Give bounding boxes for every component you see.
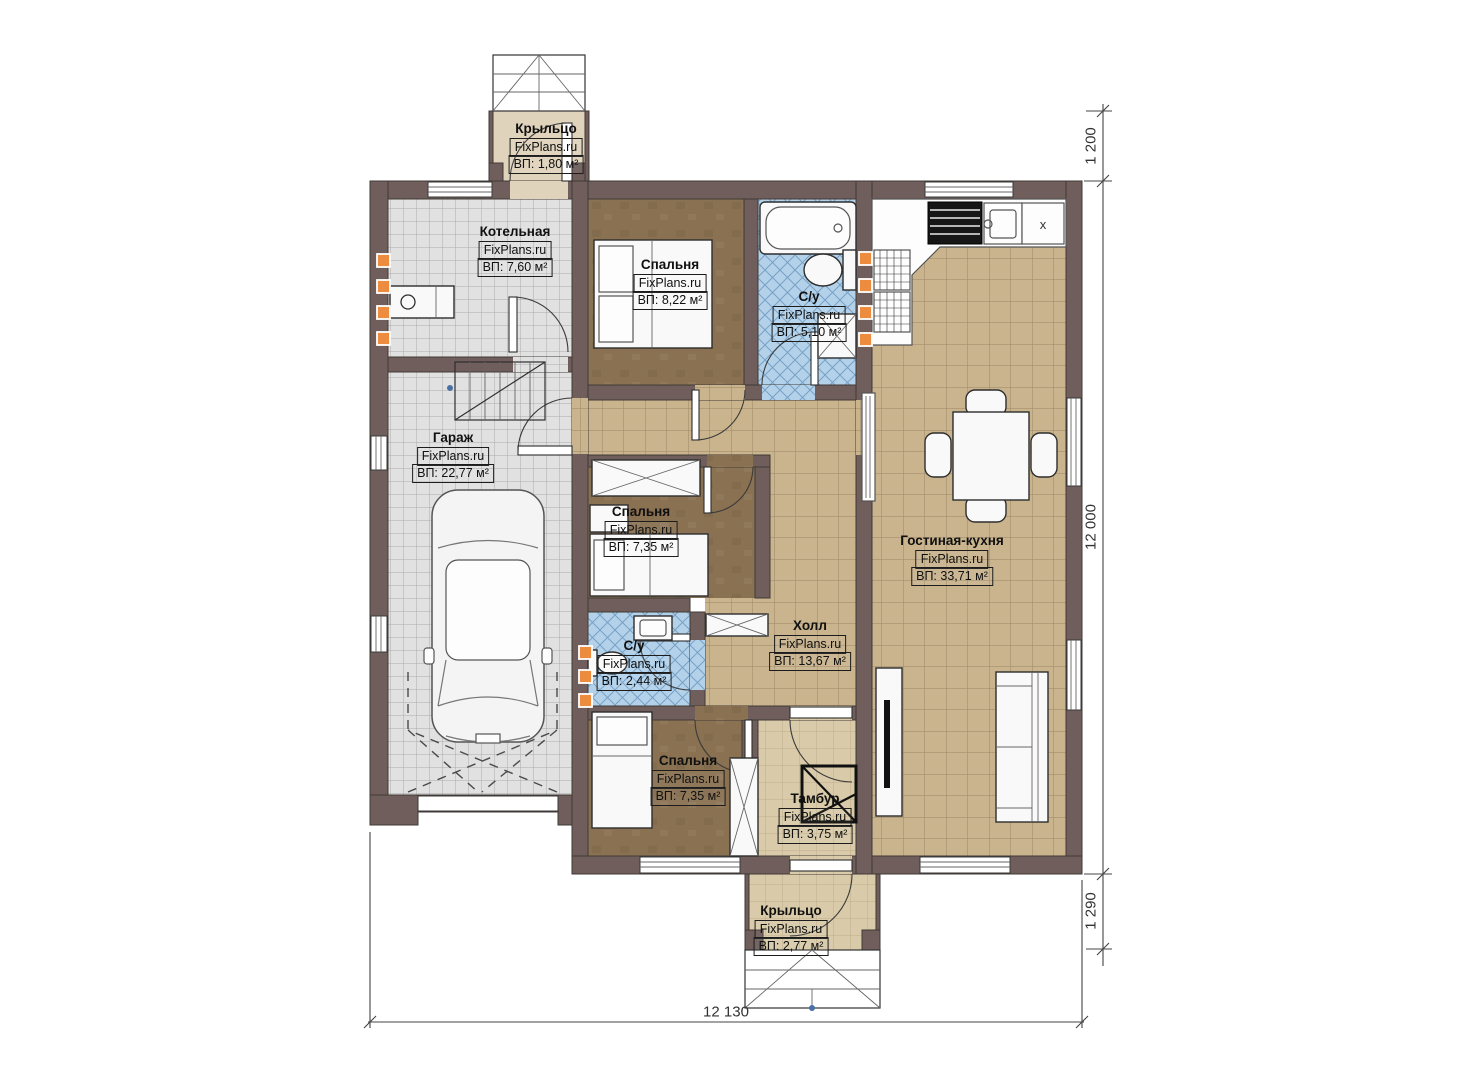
boiler-floor	[388, 199, 572, 357]
watermark-box: FixPlans.ru	[634, 274, 707, 293]
porch-top-steps	[493, 55, 585, 111]
room-label-bathroom-1: С/у FixPlans.ru ВП: 5,10 м²	[772, 289, 847, 342]
room-label-bedroom-2: Спальня FixPlans.ru ВП: 7,35 м²	[604, 504, 679, 557]
car	[424, 490, 552, 743]
watermark-box: FixPlans.ru	[916, 550, 989, 569]
watermark-box: FixPlans.ru	[605, 521, 678, 540]
room-label-bathroom-2: С/у FixPlans.ru ВП: 2,44 м²	[597, 638, 672, 691]
garage-gate	[418, 796, 558, 811]
watermark-box: FixPlans.ru	[510, 138, 583, 157]
room-area: ВП: 22,77 м²	[412, 464, 494, 483]
room-area: ВП: 2,44 м²	[597, 672, 672, 691]
watermark-box: FixPlans.ru	[779, 808, 852, 827]
corridor-floor	[588, 400, 856, 455]
window-top-boiler	[428, 182, 492, 197]
room-area: ВП: 2,77 м²	[754, 937, 829, 956]
kitchen-x-label: x	[1040, 217, 1047, 232]
wardrobe-bedroom2	[592, 460, 700, 496]
dimension-house-depth: 12 000	[1083, 504, 1100, 550]
floor-plan-drawing: x	[0, 0, 1473, 1080]
window-left-garage-1	[371, 436, 387, 470]
room-area: ВП: 7,35 м²	[604, 538, 679, 557]
watermark-box: FixPlans.ru	[479, 241, 552, 260]
room-label-garage: Гараж FixPlans.ru ВП: 22,77 м²	[412, 430, 494, 483]
room-label-boiler: Котельная FixPlans.ru ВП: 7,60 м²	[478, 224, 553, 277]
window-right-living-1	[1067, 398, 1081, 486]
room-area: ВП: 8,22 м²	[633, 291, 708, 310]
tv-stand	[876, 668, 902, 816]
boiler-equipment	[390, 286, 454, 318]
room-label-bedroom-1: Спальня FixPlans.ru ВП: 8,22 м²	[633, 257, 708, 310]
window-bottom-living	[920, 857, 1010, 873]
kitchen-sink	[984, 203, 1022, 244]
room-area: ВП: 1,80 м²	[509, 155, 584, 174]
hall-cabinet	[706, 614, 768, 636]
room-name: Холл	[793, 618, 827, 633]
room-name: Спальня	[641, 257, 699, 272]
room-label-tambour: Тамбур FixPlans.ru ВП: 3,75 м²	[778, 791, 853, 844]
room-name: Крыльцо	[760, 903, 821, 918]
bathtub	[760, 202, 856, 254]
kitchen-x-cell: x	[1022, 203, 1064, 244]
room-name: Тамбур	[791, 791, 840, 806]
dimension-porch-top-depth: 1 200	[1083, 127, 1100, 165]
window-left-garage-2	[371, 616, 387, 652]
watermark-box: FixPlans.ru	[417, 447, 490, 466]
stove	[928, 202, 982, 244]
watermark-box: FixPlans.ru	[652, 770, 725, 789]
room-name: Гараж	[433, 430, 473, 445]
room-area: ВП: 7,35 м²	[651, 787, 726, 806]
dimension-porch-bottom-depth: 1 290	[1083, 892, 1100, 930]
watermark-box: FixPlans.ru	[755, 920, 828, 939]
room-name: Крыльцо	[515, 121, 576, 136]
room-name: С/у	[798, 289, 819, 304]
room-label-porch-bottom: Крыльцо FixPlans.ru ВП: 2,77 м²	[754, 903, 829, 956]
watermark-box: FixPlans.ru	[773, 306, 846, 325]
porch-bottom-steps	[745, 950, 880, 1011]
room-area: ВП: 33,71 м²	[911, 567, 993, 586]
room-label-living-kitchen: Гостиная-кухня FixPlans.ru ВП: 33,71 м²	[900, 533, 1003, 586]
room-name: Спальня	[612, 504, 670, 519]
watermark-box: FixPlans.ru	[774, 635, 847, 654]
window-top-kitchen	[925, 182, 1013, 197]
room-name: С/у	[623, 638, 644, 653]
room-name: Котельная	[480, 224, 551, 239]
room-label-bedroom-3: Спальня FixPlans.ru ВП: 7,35 м²	[651, 753, 726, 806]
dimension-house-width: 12 130	[703, 1004, 749, 1021]
window-bottom-bedroom3	[640, 857, 740, 873]
floor-plan-canvas: x	[0, 0, 1473, 1080]
room-name: Гостиная-кухня	[900, 533, 1003, 548]
sink-bathroom2	[634, 616, 672, 640]
room-name: Спальня	[659, 753, 717, 768]
sofa	[996, 672, 1048, 822]
room-area: ВП: 7,60 м²	[478, 258, 553, 277]
room-area: ВП: 5,10 м²	[772, 323, 847, 342]
bed-bedroom3	[592, 712, 652, 828]
room-label-porch-top: Крыльцо FixPlans.ru ВП: 1,80 м²	[509, 121, 584, 174]
wardrobe-bedroom3	[730, 758, 758, 856]
room-area: ВП: 13,67 м²	[769, 652, 851, 671]
window-right-living-2	[1067, 640, 1081, 710]
room-area: ВП: 3,75 м²	[778, 825, 853, 844]
room-label-hall: Холл FixPlans.ru ВП: 13,67 м²	[769, 618, 851, 671]
watermark-box: FixPlans.ru	[598, 655, 671, 674]
